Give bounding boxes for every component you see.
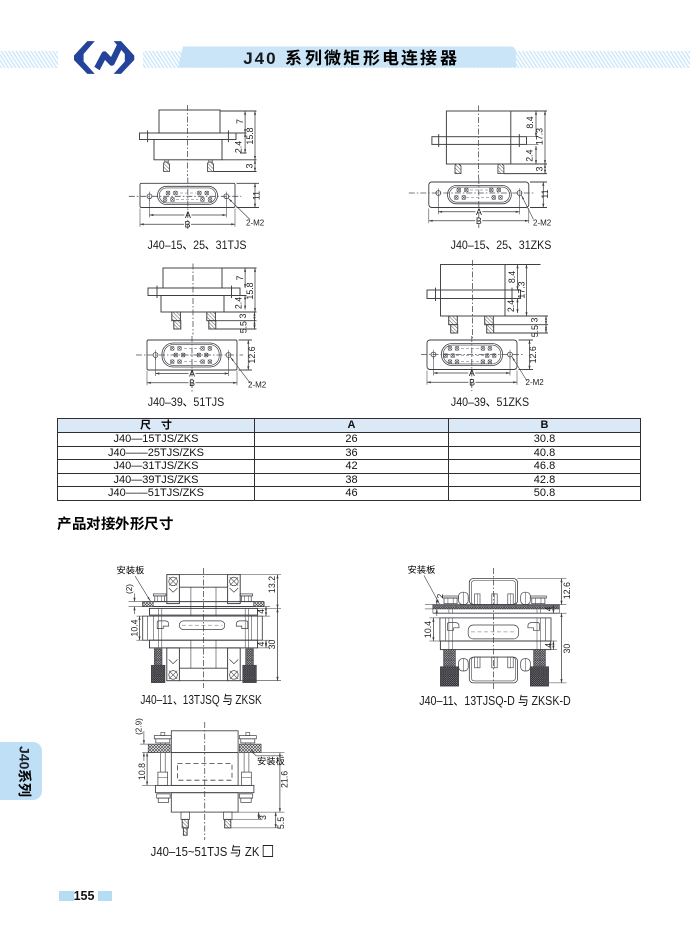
svg-text:2-M2: 2-M2: [248, 381, 267, 390]
svg-text:12.6: 12.6: [562, 582, 572, 599]
svg-text:4: 4: [256, 642, 266, 647]
svg-text:17.3: 17.3: [535, 128, 545, 145]
svg-text:B: B: [469, 377, 475, 387]
svg-text:4: 4: [256, 609, 266, 614]
svg-text:2-M2: 2-M2: [533, 218, 552, 227]
svg-text:3: 3: [529, 317, 539, 322]
svg-text:8.4: 8.4: [507, 271, 517, 283]
svg-text:10.8: 10.8: [137, 763, 147, 780]
svg-text:13.2: 13.2: [267, 576, 277, 593]
svg-text:B: B: [189, 378, 195, 388]
svg-text:3: 3: [535, 166, 545, 171]
svg-text:5.5: 5.5: [276, 817, 286, 829]
svg-text:11: 11: [252, 191, 262, 200]
svg-text:2.4: 2.4: [234, 297, 244, 309]
svg-text:2: 2: [436, 593, 445, 598]
svg-text:2.4: 2.4: [525, 149, 535, 161]
svg-text:3: 3: [238, 313, 248, 318]
svg-text:2.4: 2.4: [234, 141, 244, 153]
svg-text:(2.9): (2.9): [135, 718, 144, 735]
svg-text:2.4: 2.4: [506, 300, 516, 312]
svg-text:21.6: 21.6: [280, 771, 290, 788]
svg-text:4: 4: [543, 643, 553, 648]
svg-text:2-M2: 2-M2: [246, 219, 265, 228]
svg-text:8.4: 8.4: [525, 116, 535, 128]
svg-text:2-M2: 2-M2: [526, 378, 545, 387]
svg-text:7: 7: [235, 275, 245, 280]
svg-text:11: 11: [540, 189, 550, 198]
svg-text:10.4: 10.4: [130, 619, 140, 636]
svg-text:(2): (2): [125, 584, 134, 594]
svg-text:30: 30: [562, 644, 572, 654]
svg-text:7: 7: [235, 119, 245, 124]
svg-text:12.6: 12.6: [247, 346, 257, 363]
svg-text:17.3: 17.3: [517, 281, 527, 298]
svg-text:12.6: 12.6: [528, 346, 538, 363]
svg-text:5.5: 5.5: [238, 321, 248, 333]
svg-text:15.8: 15.8: [245, 127, 255, 144]
svg-text:3: 3: [245, 163, 255, 168]
svg-text:B: B: [476, 216, 482, 226]
svg-text:15.8: 15.8: [245, 282, 255, 299]
svg-text:4: 4: [543, 606, 553, 611]
svg-text:B: B: [185, 219, 191, 229]
svg-text:3: 3: [258, 815, 268, 820]
svg-text:10.4: 10.4: [423, 621, 433, 638]
